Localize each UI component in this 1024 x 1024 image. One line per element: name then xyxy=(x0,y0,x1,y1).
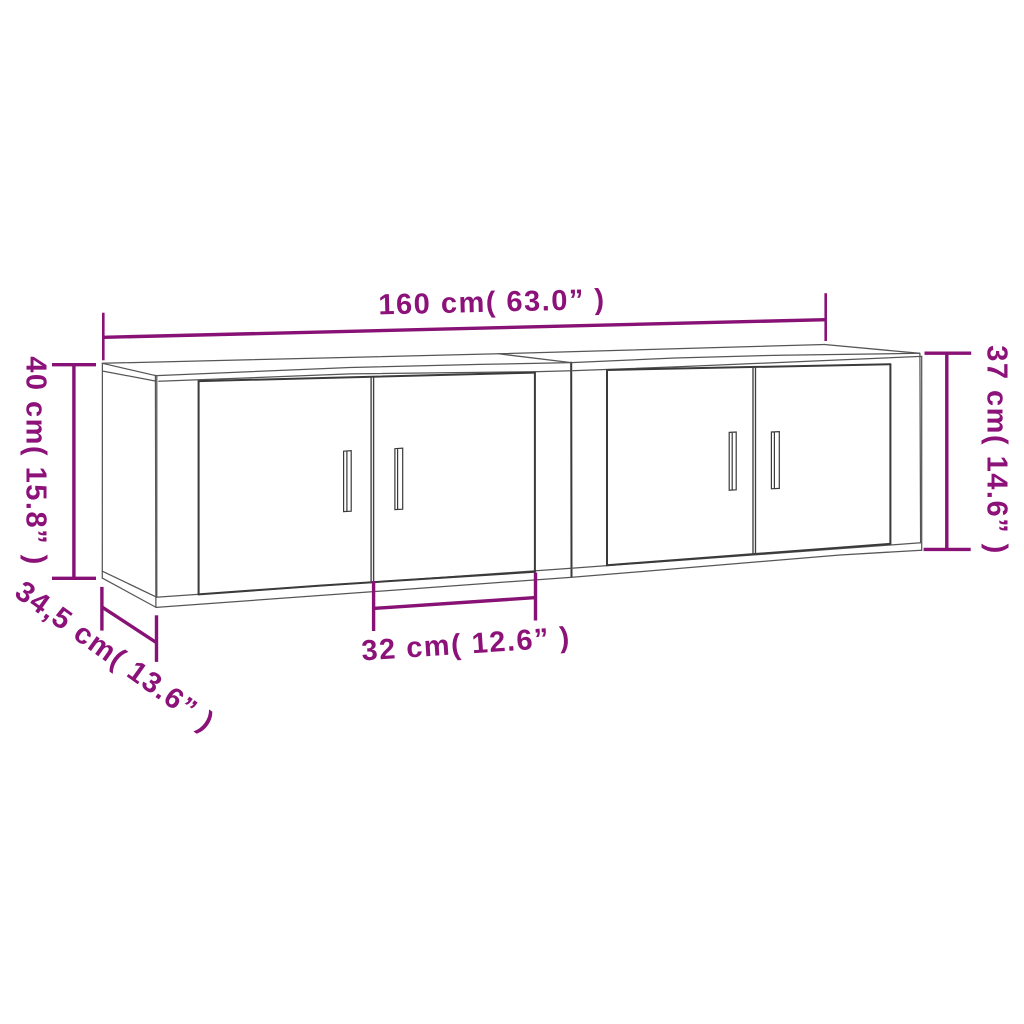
svg-text:40 cm( 15.8” ): 40 cm( 15.8” ) xyxy=(19,356,51,566)
svg-text:160 cm( 63.0” ): 160 cm( 63.0” ) xyxy=(378,284,606,322)
svg-text:37 cm( 14.6” ): 37 cm( 14.6” ) xyxy=(980,345,1012,555)
